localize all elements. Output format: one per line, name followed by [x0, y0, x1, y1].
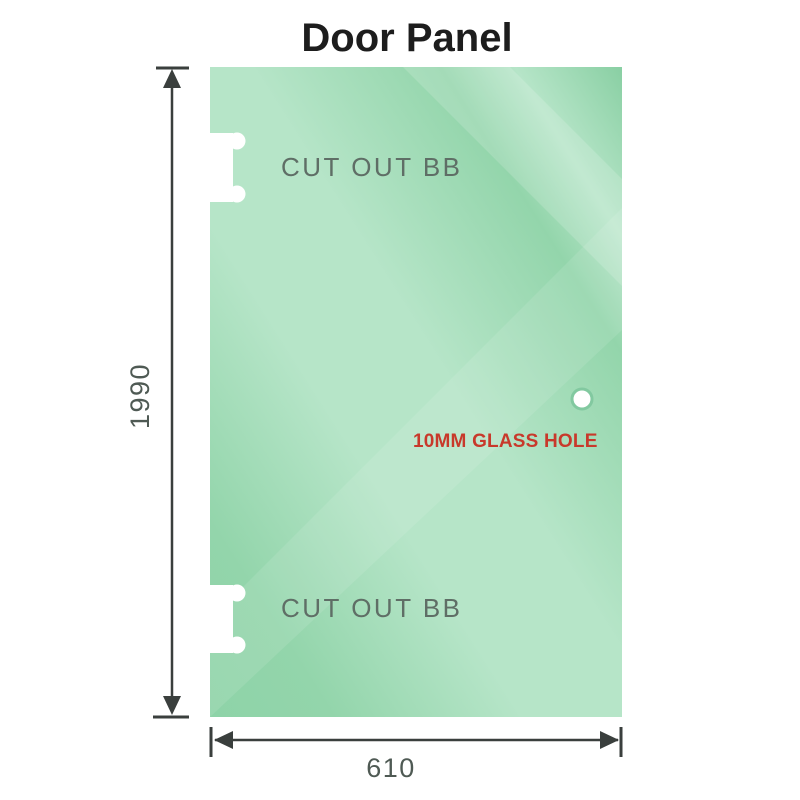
dimension-width-arrow-left: [214, 731, 233, 749]
cutout-bottom-label: CUT OUT BB: [281, 593, 463, 623]
cutout-top-relief-hole-upper: [229, 133, 246, 150]
cutout-top-label: CUT OUT BB: [281, 152, 463, 182]
cutout-bottom-relief-hole-upper: [229, 585, 246, 602]
glass-hole-circle: [572, 389, 592, 409]
dimension-width: 610: [211, 727, 621, 783]
dimension-width-arrow-right: [600, 731, 619, 749]
dimension-height: 1990: [125, 68, 189, 717]
door-panel-diagram: Door Panel CUT OUT BB CUT OUT BB 10: [0, 0, 800, 800]
dimension-height-arrow-down: [163, 696, 181, 715]
dimension-height-arrow-up: [163, 69, 181, 88]
dimension-width-label: 610: [366, 753, 416, 783]
page-title: Door Panel: [301, 16, 512, 60]
dimension-height-label: 1990: [125, 363, 155, 429]
cutout-bottom-relief-hole-lower: [229, 637, 246, 654]
cutout-top-relief-hole-lower: [229, 186, 246, 203]
diagram-canvas: Door Panel CUT OUT BB CUT OUT BB 10: [0, 0, 800, 800]
glass-hole-label: 10MM GLASS HOLE: [413, 431, 598, 452]
